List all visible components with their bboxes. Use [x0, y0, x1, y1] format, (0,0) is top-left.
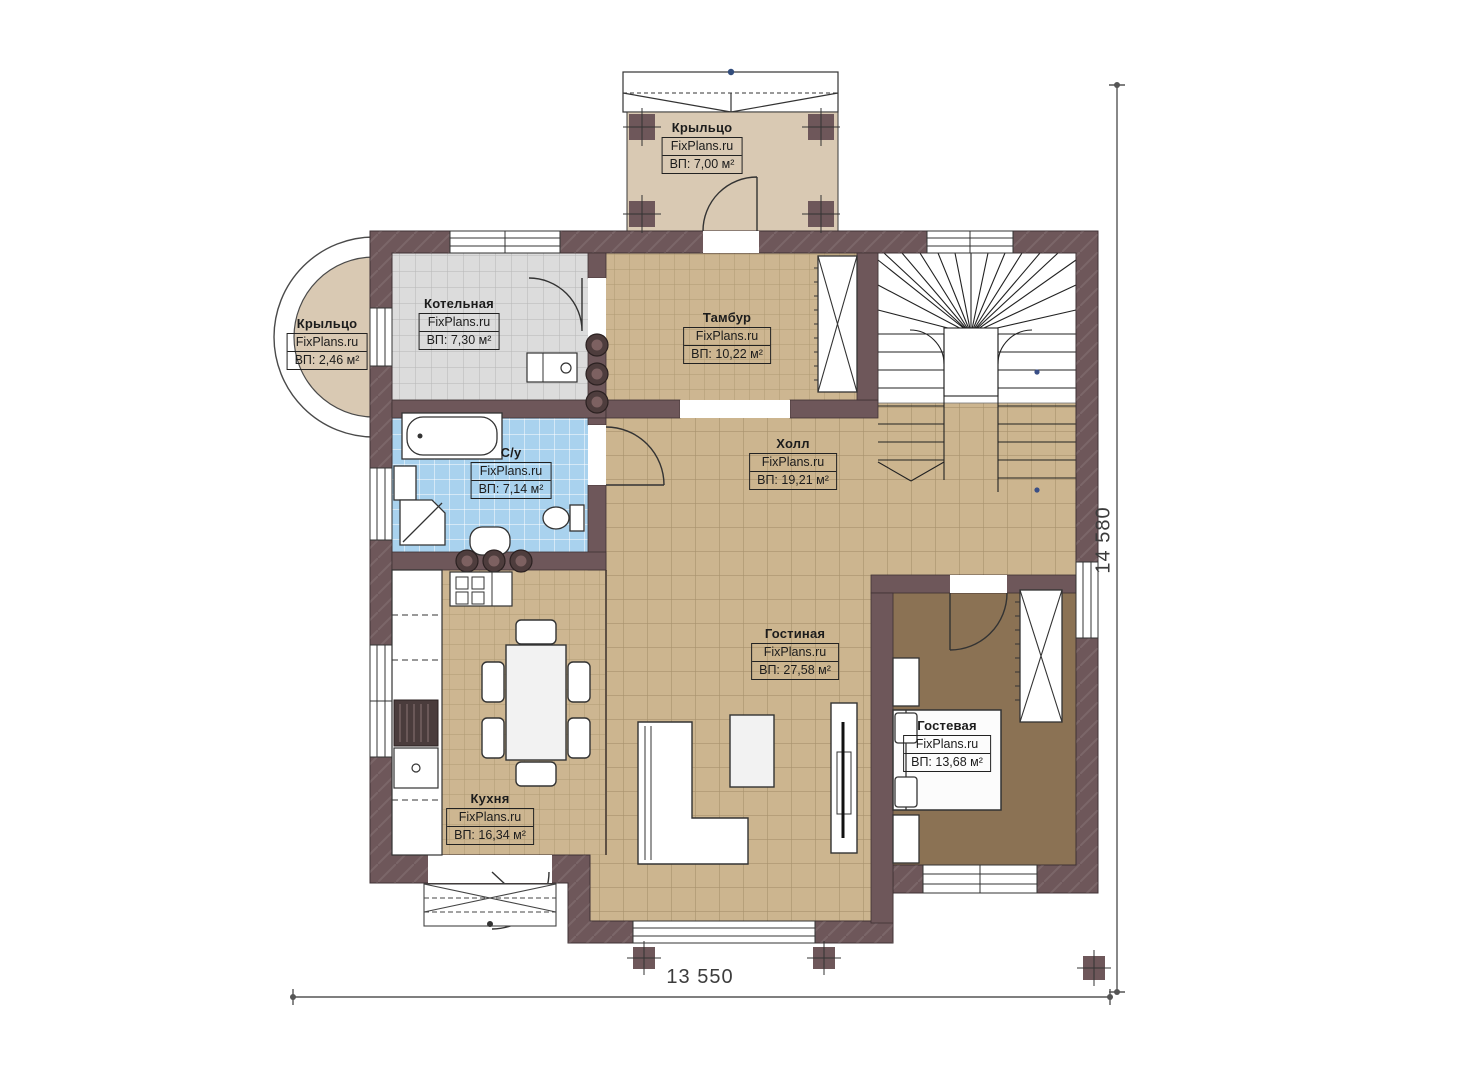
room-name: С/у	[471, 445, 552, 460]
room-name: Холл	[749, 436, 837, 451]
room-site: FixPlans.ru	[750, 454, 836, 471]
room-name: Тамбур	[683, 310, 771, 325]
dimension-height-label: 14 580	[1093, 506, 1116, 573]
room-site: FixPlans.ru	[447, 809, 533, 826]
room-info-box: FixPlans.ru ВП: 7,14 м²	[471, 462, 552, 499]
room-label-guest: Гостевая FixPlans.ru ВП: 13,68 м²	[903, 718, 991, 772]
room-area: ВП: 10,22 м²	[684, 345, 770, 363]
room-area: ВП: 7,00 м²	[663, 155, 742, 173]
room-area: ВП: 19,21 м²	[750, 471, 836, 489]
room-area: ВП: 27,58 м²	[752, 661, 838, 679]
room-label-kitchen: Кухня FixPlans.ru ВП: 16,34 м²	[446, 791, 534, 845]
room-info-box: FixPlans.ru ВП: 7,00 м²	[662, 137, 743, 174]
room-site: FixPlans.ru	[904, 736, 990, 753]
room-info-box: FixPlans.ru ВП: 2,46 м²	[287, 333, 368, 370]
room-site: FixPlans.ru	[752, 644, 838, 661]
room-name: Крыльцо	[287, 316, 368, 331]
room-info-box: FixPlans.ru ВП: 16,34 м²	[446, 808, 534, 845]
room-label-living: Гостиная FixPlans.ru ВП: 27,58 м²	[751, 626, 839, 680]
room-area: ВП: 16,34 м²	[447, 826, 533, 844]
floor-plan-page: Крыльцо FixPlans.ru ВП: 7,00 м² Крыльцо …	[0, 0, 1473, 1080]
dimension-line-bottom	[290, 989, 1113, 1005]
room-name: Кухня	[446, 791, 534, 806]
room-label-bathroom: С/у FixPlans.ru ВП: 7,14 м²	[471, 445, 552, 499]
vestibule-wardrobe	[814, 256, 857, 392]
room-area: ВП: 13,68 м²	[904, 753, 990, 771]
room-info-box: FixPlans.ru ВП: 13,68 м²	[903, 735, 991, 772]
room-info-box: FixPlans.ru ВП: 19,21 м²	[749, 453, 837, 490]
room-label-porch-left: Крыльцо FixPlans.ru ВП: 2,46 м²	[287, 316, 368, 370]
room-label-boiler: Котельная FixPlans.ru ВП: 7,30 м²	[419, 296, 500, 350]
room-label-hall: Холл FixPlans.ru ВП: 19,21 м²	[749, 436, 837, 490]
room-area: ВП: 7,14 м²	[472, 480, 551, 498]
room-site: FixPlans.ru	[684, 328, 770, 345]
room-site: FixPlans.ru	[472, 463, 551, 480]
room-site: FixPlans.ru	[420, 314, 499, 331]
dimension-width-label: 13 550	[666, 966, 733, 989]
room-name: Котельная	[419, 296, 500, 311]
room-site: FixPlans.ru	[288, 334, 367, 351]
room-label-porch-top: Крыльцо FixPlans.ru ВП: 7,00 м²	[662, 120, 743, 174]
room-name: Гостиная	[751, 626, 839, 641]
room-site: FixPlans.ru	[663, 138, 742, 155]
room-label-vestibule: Тамбур FixPlans.ru ВП: 10,22 м²	[683, 310, 771, 364]
room-info-box: FixPlans.ru ВП: 27,58 м²	[751, 643, 839, 680]
room-name: Крыльцо	[662, 120, 743, 135]
exterior-steps	[424, 884, 556, 927]
room-info-box: FixPlans.ru ВП: 7,30 м²	[419, 313, 500, 350]
room-info-box: FixPlans.ru ВП: 10,22 м²	[683, 327, 771, 364]
room-area: ВП: 7,30 м²	[420, 331, 499, 349]
room-name: Гостевая	[903, 718, 991, 733]
room-area: ВП: 2,46 м²	[288, 351, 367, 369]
